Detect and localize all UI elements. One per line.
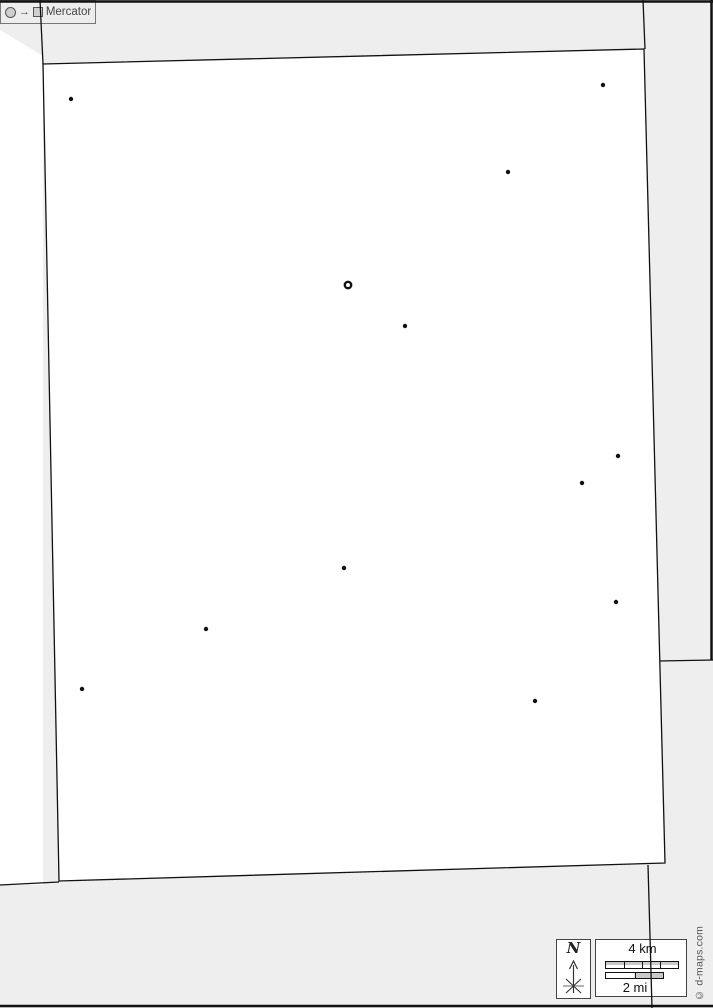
- city-dot: [614, 600, 618, 604]
- map-page: N 4 km 2 mi → Mercator © d-maps.com: [0, 0, 713, 1008]
- city-dot: [580, 481, 584, 485]
- city-dot: [204, 627, 208, 631]
- city-dot: [601, 83, 605, 87]
- scale-bar-mi: [605, 972, 664, 979]
- compass-panel: N: [556, 939, 591, 999]
- city-dot: [616, 454, 620, 458]
- scale-panel: 4 km 2 mi: [595, 939, 687, 997]
- scale-tick: [624, 962, 625, 968]
- city-dot: [533, 699, 537, 703]
- city-dot: [403, 324, 407, 328]
- compass-rose-icon: [557, 957, 590, 997]
- city-dot: [69, 97, 73, 101]
- city-dot: [506, 170, 510, 174]
- scale-tick: [660, 962, 661, 968]
- scale-mi-label: 2 mi: [606, 980, 664, 995]
- scale-tick: [635, 973, 636, 978]
- scale-bar-km: [605, 961, 679, 969]
- northeast-boundary-line: [643, 0, 645, 49]
- copyright-credit: © d-maps.com: [691, 920, 708, 1006]
- county-region-shape: [43, 49, 665, 881]
- city-dot: [80, 687, 84, 691]
- capital-ring-marker: [345, 282, 351, 288]
- base-map-canvas: [0, 0, 713, 1008]
- scale-km-label: 4 km: [606, 941, 679, 956]
- northwest-boundary-line: [40, 0, 43, 64]
- outside-state-area: [0, 30, 43, 885]
- east-neighbor-divider-line: [659, 660, 713, 661]
- north-label: N: [557, 940, 590, 957]
- city-dot: [342, 566, 346, 570]
- scale-tick: [642, 962, 643, 968]
